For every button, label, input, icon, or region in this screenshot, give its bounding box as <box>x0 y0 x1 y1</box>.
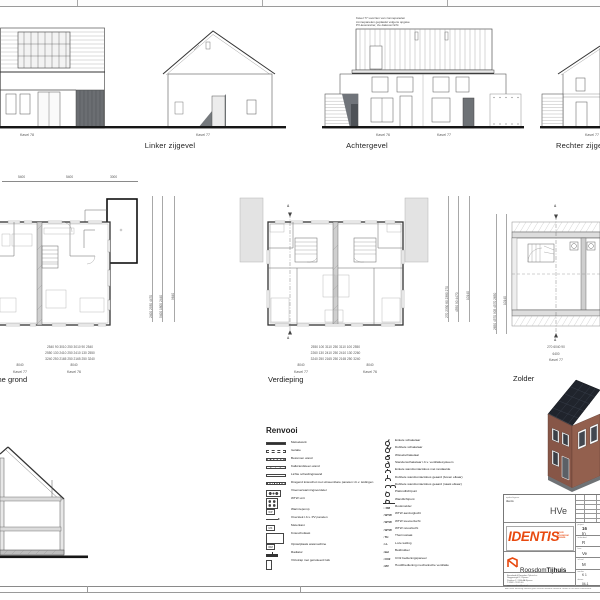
switch-single-icon <box>383 439 395 444</box>
bottom-border-divider <box>87 586 88 592</box>
dim-value: 5400 1800 2440 <box>159 295 163 318</box>
schaal-cell: schaal M <box>576 557 600 569</box>
legend-right-column: Enkele schakelaar Dubbele schakelaar Wis… <box>383 439 499 571</box>
pv-overstek-icon <box>266 517 288 522</box>
neighbor-block-right <box>405 198 428 262</box>
wtw-unit-icon <box>266 498 288 509</box>
legend-item-label: Meterkast <box>291 524 384 527</box>
plan-title: Begane grond <box>0 375 27 384</box>
legend-item-label: Overstek t.b.v. PV panelen <box>291 516 384 519</box>
legend-item-label: Knieschotkast <box>291 532 384 535</box>
left-garage <box>325 94 358 128</box>
fase-cell: fase Ve <box>576 546 600 557</box>
client-cell: opdrachtgever Identis HVe <box>504 495 576 522</box>
dim-value: 2400 2930 4470 <box>149 295 153 318</box>
main-facade <box>340 74 506 128</box>
legend-item: Metselwerk <box>266 441 384 449</box>
dim-value: 10140 <box>503 296 507 305</box>
top-strip-divider <box>77 0 78 6</box>
identis-logo-cell: IDENTIS DOOR ROOSDOM TIJHUIS <box>504 522 576 551</box>
code-icon: ↓CO2 <box>383 557 395 561</box>
code-icon: ↓TH <box>383 535 395 539</box>
dim-row: 3240 250 2165 250 2165 250 3240 <box>268 357 403 361</box>
switch-wissel-icon <box>383 454 395 459</box>
legend-item: Vloerverwarmingsverdeler <box>266 489 384 497</box>
code-icon: ↓WTW <box>383 520 395 524</box>
radiator-icon <box>266 552 288 557</box>
legend-item-label: Dubbele schakelaar <box>395 446 422 449</box>
plan-walls <box>0 222 110 325</box>
drawing-sheet: Kavel 78 Kavel 77 Linker zijgevel <box>0 0 600 600</box>
dim-total: 8040 <box>268 363 334 367</box>
client-label: opdrachtgever <box>506 497 519 499</box>
schaal-label: schaal <box>578 559 584 561</box>
dim-line <box>506 214 507 334</box>
top-strip-divider <box>447 0 448 6</box>
beton-hatch-icon <box>266 458 288 461</box>
eaves-trim <box>352 70 494 74</box>
warmtepomp-icon: WP <box>266 509 288 515</box>
kavel-label: Kavel 77 <box>2 370 38 374</box>
dim-line <box>174 196 175 322</box>
ground-line <box>0 126 286 128</box>
legend-item: MK Meterkast <box>266 524 384 532</box>
elevation-caption: Rechter zijgevel <box>556 141 600 150</box>
legend-item: WTW unit <box>266 497 384 508</box>
legend-item-label: CO2 bedieningspaneel <box>395 557 426 560</box>
plan-walls <box>268 222 403 325</box>
onderdeel-cell: onderdeel R <box>576 535 600 546</box>
dim-value: 270 2330 80 2380 270 <box>445 286 449 318</box>
schaal-value: M <box>582 562 586 567</box>
legend-item: Overstek t.b.v. PV panelen <box>266 516 384 524</box>
floorplan-begane-grond-drawing <box>0 190 200 340</box>
legend-item-label: Warmtepomp <box>291 508 384 511</box>
werknr-value: K 1 <box>582 573 587 577</box>
identis-logo: IDENTIS <box>508 529 559 544</box>
ground-line <box>0 556 88 559</box>
legend-item-label: Isolatie <box>291 449 384 452</box>
datum-value: 04-1 <box>582 582 588 586</box>
dim-value: 2650 4570 905 4570 2650 <box>493 293 497 330</box>
gable-house-partial <box>558 46 600 128</box>
dim-row: 2540 90 3010 250 3010 90 2540 <box>0 345 140 349</box>
section-marker: A <box>287 204 289 208</box>
kavel-label: Kavel 76 <box>376 133 390 137</box>
metselwerk-hatch-icon <box>266 442 288 445</box>
dim-row: 270 6040 90 <box>512 345 600 349</box>
kavel-label: Kavel 77 <box>196 133 210 137</box>
dim-value: 4550 90 4470 <box>455 293 459 313</box>
address-cell: Bouwbedrijf Roosdom Tijhuis b.v. Reggesi… <box>504 572 576 587</box>
dim-row: 2260 130 2410 250 2410 130 2260 <box>268 351 403 355</box>
kavel-label: Kavel 76 <box>337 370 403 374</box>
elevation-left-drawing <box>0 22 310 134</box>
onderdeel-value: R <box>582 540 585 545</box>
elevation-note: Kavel 77 voorzien van zonnepanelen zonne… <box>356 17 446 28</box>
kavel-label: Kavel 76 <box>40 370 108 374</box>
legend-item-label: Radiator <box>291 551 384 554</box>
legend-item-label: Loze leiding <box>395 542 412 545</box>
legend-item: WM Opstelplaats wasmachine <box>266 543 384 551</box>
attic-volume <box>356 29 492 70</box>
legend-item-label: Betonnen wand <box>291 457 384 460</box>
elevation-caption: Achtergevel <box>336 141 398 150</box>
kavel-label: Kavel 77 <box>437 133 451 137</box>
legend-item-label: Opstelplaats wasmachine <box>291 543 384 546</box>
dim-value: 10140 <box>466 291 470 300</box>
sheet-bottom-border <box>0 592 600 593</box>
kavel-label: Kavel 77 <box>268 370 334 374</box>
house-3d-render <box>540 368 600 496</box>
legend-item: Vlizotrap met geïsoleerd luik <box>266 559 384 570</box>
legend-item-label: Dubbele wandcontactdoos geaard (naast el… <box>395 483 462 486</box>
dim-row: 2550 130 2410 250 2410 130 2550 <box>0 351 140 355</box>
legend-item-label: Rookmelder <box>395 505 412 508</box>
walls-floors <box>0 458 64 555</box>
dim-total: 8040 <box>40 363 108 367</box>
dim-line <box>469 196 470 322</box>
legend-item-label: Beldrukker <box>395 549 410 552</box>
fase-label: fase <box>578 548 582 550</box>
onderdeel-label: onderdeel <box>578 537 587 539</box>
ground-line <box>322 126 524 128</box>
vloerverwarmingsverdeler-icon <box>266 490 288 497</box>
roosdomtijhuis-logo-icon <box>507 557 518 568</box>
legend-item-label: Wisselschakelaar <box>395 454 419 457</box>
plan-title: Verdieping <box>268 375 303 384</box>
legend-item-label: WTW unit <box>291 497 384 500</box>
kavel-label: Kavel 77 <box>585 133 599 137</box>
floorplan-verdieping-drawing <box>235 190 470 340</box>
fase-value: Ve <box>582 551 587 556</box>
code-icon: ○ RM <box>383 506 395 510</box>
elevation-caption: Linker zijgevel <box>138 141 202 150</box>
legend-item-label: WTW toevoerlucht <box>395 520 420 523</box>
legend-item: ↓MV Hoofdbediening mechanische ventilati… <box>383 564 499 571</box>
lichte-wand-icon <box>266 474 288 477</box>
socket-double-vertical-icon <box>383 476 395 481</box>
ground-line <box>540 126 600 128</box>
roof <box>0 447 64 502</box>
top-strip-divider <box>262 0 263 6</box>
dim-value: 5400 <box>66 175 73 179</box>
legend-item-label: Wandlichtpunt <box>395 498 415 501</box>
legend-left-column: Metselwerk Isolatie Betonnen wand Kalkza… <box>266 441 384 570</box>
legend-item: Betonnen wand <box>266 457 384 465</box>
legend-item-label: Enkele wandcontactdoos met randaarde <box>395 468 450 471</box>
elevation-back-drawing <box>315 22 530 134</box>
switch-standen-icon <box>383 461 395 466</box>
dim-total: 8040 <box>337 363 403 367</box>
side-facade <box>572 414 600 488</box>
legend-item: Kalkzandsteen wand <box>266 465 384 473</box>
legend-item-label: Dragend knieschot met uitneembare panele… <box>291 481 384 484</box>
meterkast-icon: MK <box>266 525 288 531</box>
flat-roof-building <box>0 28 105 128</box>
elevation-right-drawing <box>540 22 600 134</box>
legend-item-label: Plafondlichtpunt <box>395 490 417 493</box>
legend-item-label: WTW aanzuiglucht <box>395 512 421 515</box>
ceiling-light-icon <box>383 491 395 496</box>
vlizotrap-icon <box>266 560 288 570</box>
client-value: Identis <box>506 500 514 503</box>
isolatie-hatch-icon <box>266 450 288 453</box>
dim-value: 9640 <box>171 293 175 300</box>
legend-item-label: Enkele schakelaar <box>395 439 420 442</box>
project-cell: project 16 In <box>576 522 600 535</box>
right-extension <box>490 94 521 128</box>
wasmachine-icon: WM <box>266 544 288 550</box>
kalkzandsteen-hatch-icon <box>266 466 288 469</box>
floorplan-zolder-drawing <box>488 190 600 340</box>
legend-title: Renvooi <box>266 426 298 435</box>
dim-line <box>2 181 138 182</box>
legend-item-label: Dubbele wandcontactdoos geaard (boven el… <box>395 476 463 479</box>
gable-house <box>163 31 275 128</box>
legend-item-label: Vloerverwarmingsverdeler <box>291 489 384 492</box>
section-marker: A <box>554 204 556 208</box>
code-icon: ↓WTW <box>383 528 395 532</box>
legend-item-label: Kalkzandsteen wand <box>291 465 384 468</box>
sheet-top-strip <box>0 0 600 7</box>
socket-double-horizontal-icon <box>383 483 395 488</box>
code-icon: ↓Bel <box>383 550 395 554</box>
dim-row: 2550 100 3110 250 3110 100 2550 <box>268 345 403 349</box>
dim-value: 3000 <box>110 175 117 179</box>
legend-item-label: WTW retourlucht <box>395 527 418 530</box>
kast-icon <box>266 533 288 544</box>
revision-table <box>576 495 600 522</box>
roosdomtijhuis-logo-cell: RoosdomTijhuis <box>504 551 576 572</box>
sheet-code: HVe <box>550 506 567 516</box>
socket-single-icon <box>383 469 395 474</box>
neighbor-block-left <box>240 198 263 262</box>
legend-item-label: Standenschakelaar t.b.v. ventilatiesyste… <box>395 461 453 464</box>
kavel-label: Kavel 78 <box>20 133 34 137</box>
knieschot-hatch-icon <box>266 482 288 485</box>
section-marker: A <box>554 338 556 342</box>
legend-item-label: Vlizotrap met geïsoleerd luik <box>291 559 384 562</box>
switch-double-icon <box>383 447 395 452</box>
identis-logo-subtext: DOOR ROOSDOM TIJHUIS <box>557 532 569 540</box>
dim-total: 8040 <box>2 363 38 367</box>
code-icon: ↓MV <box>383 564 395 568</box>
plan-title: Zolder <box>513 374 534 383</box>
legend-item-label: Hoofdbediening mechanische ventilatie <box>395 564 449 567</box>
section-drawing <box>0 420 95 570</box>
code-icon: ↓WTW <box>383 513 395 517</box>
dim-total: 6400 <box>512 352 600 356</box>
front-facade <box>548 414 572 488</box>
dim-row: 3240 250 2165 250 2165 250 3240 <box>0 357 140 361</box>
kavel-label: Kavel 77 <box>512 358 600 362</box>
low-extension <box>542 94 563 128</box>
werknr-datum-cell: werknr. K 1 datum 04-1 <box>576 569 600 587</box>
dim-value: 5400 <box>18 175 25 179</box>
title-block: opdrachtgever Identis HVe IDENTIS DOOR R… <box>503 494 600 586</box>
legend: Renvooi Metselwerk Isolatie Betonnen wan… <box>262 426 500 586</box>
disclaimer-text: Aan deze tekening kunnen geen rechten wo… <box>505 588 598 590</box>
legend-item: Isolatie <box>266 449 384 457</box>
legend-item-label: Lichte scheidingswand <box>291 473 384 476</box>
bottom-border-divider <box>300 586 301 592</box>
legend-item-label: Thermostaat <box>395 534 412 537</box>
code-icon: ↓LL <box>383 542 395 546</box>
legend-item-label: Metselwerk <box>291 441 384 444</box>
section-marker: A <box>287 336 289 340</box>
wall-light-icon <box>383 498 395 504</box>
